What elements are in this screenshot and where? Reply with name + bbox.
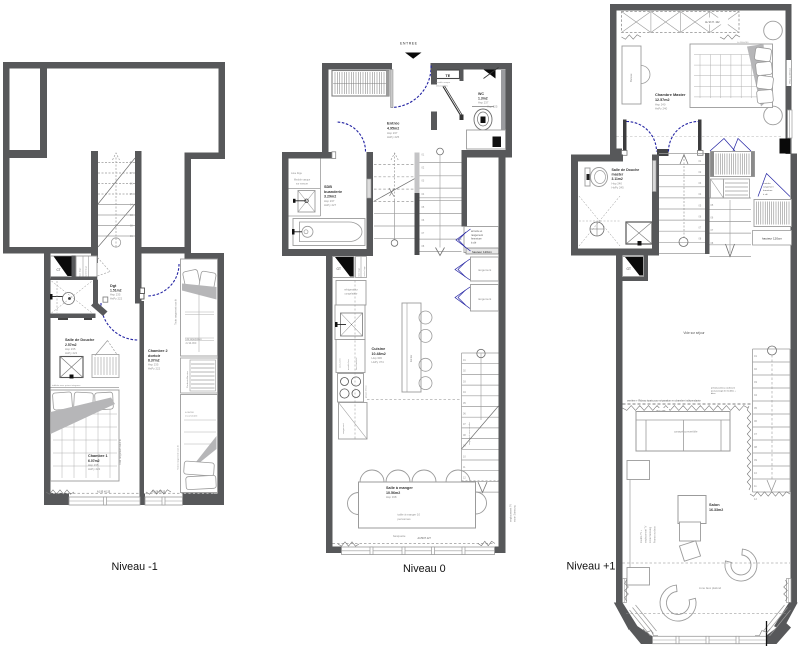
svg-text:Lits superposes: Lits superposes [186,338,203,341]
svg-text:Dgt: Dgt [110,284,117,288]
svg-text:zone faux plafond: zone faux plafond [699,586,722,590]
svg-text:escamotable: escamotable [185,415,198,418]
svg-text:Velux au dessus: Velux au dessus [790,67,792,84]
svg-text:lave linge: lave linge [80,267,82,277]
svg-text:rangement: rangement [342,423,345,434]
svg-text:Tiroirs rangement sous lit: Tiroirs rangement sous lit [175,299,178,325]
svg-text:refrigerateur: refrigerateur [344,289,358,292]
svg-text:banquette: banquette [393,534,406,538]
svg-text:rangement: rangement [763,186,774,189]
svg-text:CT: CT [57,268,61,272]
svg-text:canapé convertible: canapé convertible [674,430,698,434]
svg-text:Niveau -1: Niveau -1 [112,561,158,573]
svg-text:lave linge: lave linge [359,267,361,276]
svg-text:HsPy 240: HsPy 240 [655,106,668,110]
svg-text:rangement: rangement [471,234,483,237]
svg-text:dortoir: dortoir [148,354,161,358]
svg-text:HsPy 225: HsPy 225 [387,135,400,139]
svg-text:Chambre 1: Chambre 1 [88,454,108,458]
svg-text:hauteur 120cm: hauteur 120cm [472,250,493,254]
svg-text:Vide sur séjour: Vide sur séjour [683,331,705,335]
svg-text:fermeture: fermeture [763,189,773,192]
svg-text:écran Samsung: écran Samsung [649,526,652,543]
svg-text:HsPy 222: HsPy 222 [148,367,161,371]
svg-text:Chambre 2: Chambre 2 [148,349,168,353]
svg-text:A1.06 H.115: A1.06 H.115 [152,490,166,493]
svg-text:rangement: rangement [478,297,492,301]
svg-text:Hsp 225: Hsp 225 [487,105,498,109]
svg-text:rangement: rangement [478,268,492,272]
svg-text:A4.56 H.127: A4.56 H.127 [418,537,432,540]
svg-text:prévoir panneau coulissant: prévoir panneau coulissant [711,387,735,390]
svg-text:meuble bas: meuble bas [348,359,350,370]
svg-text:SDB: SDB [324,185,332,189]
svg-text:congelateur: congelateur [344,292,357,295]
svg-text:hauteur 120cm: hauteur 120cm [762,237,783,241]
svg-text:Salon: Salon [709,502,720,507]
svg-text:HsPy 222: HsPy 222 [65,351,78,355]
svg-text:Meuble vasque: Meuble vasque [294,179,311,182]
svg-text:AL 93 H. 102: AL 93 H. 102 [705,21,720,24]
svg-text:seche linge: seche linge [364,265,366,276]
svg-text:sur mesure: sur mesure [296,182,309,185]
svg-text:Tiroir rangement sous lit: Tiroir rangement sous lit [119,439,122,465]
svg-text:2x 90 /200: 2x 90 /200 [186,343,197,345]
svg-text:Entrée: Entrée [387,121,400,126]
svg-text:A1.95 H.115: A1.95 H.115 [97,490,111,493]
svg-text:Salle de Douche: Salle de Douche [65,338,94,342]
svg-text:fermeture: fermeture [471,238,482,241]
svg-text:verrière + Rideau épais pour s: verrière + Rideau épais pour séparation … [627,400,701,403]
svg-text:ENTREE: ENTREE [400,42,418,46]
svg-text:buanderie: buanderie [324,190,342,194]
svg-text:emplacement TV: emplacement TV [645,525,648,543]
svg-text:WC: WC [478,92,484,96]
svg-text:Frames sur bras: Frames sur bras [654,525,657,543]
svg-text:plaque 4 feux: plaque 4 feux [366,385,368,398]
svg-text:Lave linge: Lave linge [291,172,303,175]
svg-text:Chambre Master: Chambre Master [655,92,686,97]
svg-text:Salle à manger: Salle à manger [386,486,413,490]
svg-text:12.57m2: 12.57m2 [655,98,670,102]
svg-text:lave vaisselle: lave vaisselle [356,357,358,370]
svg-text:master: master [612,173,624,177]
svg-text:Salle de Douche: Salle de Douche [612,168,640,172]
svg-text:lit 90/200: lit 90/200 [185,411,195,414]
svg-text:meuble TV +: meuble TV + [641,529,643,543]
svg-text:seche linge: seche linge [86,265,88,276]
svg-text:Niveau +1: Niveau +1 [567,561,616,573]
svg-text:HsPy 222: HsPy 222 [88,467,101,471]
svg-text:4.95m2: 4.95m2 [387,127,399,131]
svg-text:3.29m2: 3.29m2 [324,195,336,199]
svg-text:tablette avec prises integrees: tablette avec prises integrees [52,384,81,387]
svg-text:à clé: à clé [763,194,768,196]
svg-text:à clé: à clé [471,241,477,244]
svg-text:armoire et: armoire et [471,230,483,233]
svg-text:HsPy 374: HsPy 374 [372,360,385,364]
svg-text:10.56m2: 10.56m2 [386,491,400,495]
svg-text:HsPy 245: HsPy 245 [612,185,625,189]
svg-text:meuble vasque: meuble vasque [436,82,451,84]
svg-text:emplacement TV: emplacement TV [510,504,513,522]
svg-text:HsPy 227: HsPy 227 [324,203,337,207]
svg-text:GT: GT [627,267,631,271]
svg-text:television TC: television TC [436,84,448,87]
svg-text:ilot bar: ilot bar [410,355,413,362]
svg-text:Penderie/Armoire: Penderie/Armoire [186,370,189,388]
svg-text:16.33m2: 16.33m2 [709,508,723,512]
svg-text:Hsp 198: Hsp 198 [386,495,397,499]
svg-text:TE: TE [446,74,451,78]
svg-text:10.48m2: 10.48m2 [372,352,386,356]
svg-text:Tiroirs rangement sous lit: Tiroirs rangement sous lit [177,445,180,470]
svg-text:matelas: matelas [763,182,772,185]
svg-text:rangement sous escalier: rangement sous escalier [468,422,471,445]
svg-text:ecran Samsung: ecran Samsung [514,505,517,522]
svg-text:pour passage de meubles +: pour passage de meubles + [711,390,737,392]
svg-text:sous-evier: sous-evier [339,358,342,368]
svg-text:Lit 160x200: Lit 160x200 [737,41,749,44]
svg-text:Cuisine: Cuisine [372,347,386,351]
svg-text:personnes: personnes [398,517,412,521]
svg-text:Niveau 0: Niveau 0 [403,563,446,575]
svg-text:GT: GT [337,267,341,271]
svg-text:HsPy 222: HsPy 222 [110,297,123,301]
svg-text:Bureau: Bureau [629,73,633,82]
